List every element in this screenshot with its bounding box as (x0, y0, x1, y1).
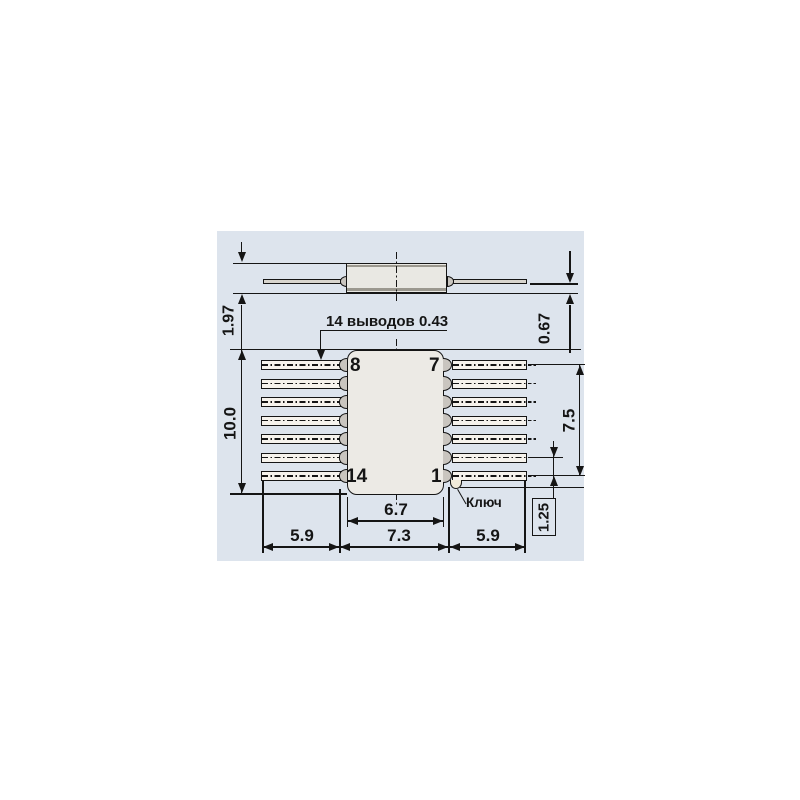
lead (452, 397, 528, 407)
arrowhead (263, 543, 273, 551)
lead (261, 471, 341, 481)
extension-line-body-bottom-left (230, 493, 347, 494)
dim-line-bottom (263, 546, 526, 547)
dim-label-lead-offset: 0.67 (537, 306, 554, 350)
lead (261, 434, 341, 444)
arrowhead (576, 466, 584, 476)
side-lead-right (453, 279, 527, 284)
leader-line (321, 330, 447, 331)
arrowhead (340, 543, 350, 551)
arrowhead (238, 350, 246, 360)
arrowhead (576, 365, 584, 375)
dim-line-0.67 (569, 251, 570, 273)
lead-14 (261, 360, 341, 370)
lead (261, 379, 341, 389)
lead-tab (339, 413, 348, 427)
arrowhead (550, 447, 558, 457)
lead (452, 434, 528, 444)
dim-label-package-height: 1.97 (221, 298, 238, 342)
key-label: Ключ (466, 496, 502, 510)
dim-label-body-width: 6.7 (374, 501, 418, 518)
arrowhead (433, 517, 443, 525)
lead (452, 453, 528, 463)
arrowhead (515, 543, 525, 551)
package-drawing: 1.97 0.67 8 7 14 1 Ключ 14 выв (0, 0, 800, 800)
arrowhead (550, 476, 558, 486)
pin-number-7: 7 (429, 356, 440, 375)
lead (452, 360, 528, 370)
arrowhead (566, 294, 574, 304)
lead (261, 397, 341, 407)
arrowhead (566, 273, 574, 283)
dim-label-pitch: 1.25 (535, 495, 552, 539)
arrowhead (438, 543, 448, 551)
center-line-horizontal (336, 421, 457, 422)
dim-label-body-height: 10.0 (222, 401, 239, 445)
side-lead-left (263, 279, 341, 284)
pin-number-1: 1 (431, 467, 442, 486)
arrowhead (317, 350, 325, 360)
dim-line-1.97 (241, 305, 242, 353)
key-notch (450, 480, 462, 489)
pin-number-8: 8 (350, 356, 361, 375)
arrowhead (450, 543, 460, 551)
dim-label-lead-right: 5.9 (466, 527, 510, 544)
dim-line-6.7 (348, 520, 443, 521)
lead-tab (339, 450, 348, 464)
lead (452, 379, 528, 389)
arrowhead (238, 294, 246, 304)
arrowhead (238, 483, 246, 493)
dim-label-tab-span: 7.3 (377, 527, 421, 544)
extension-line-key-bottom-right (460, 487, 584, 488)
lead (261, 416, 341, 426)
dim-label-lead-left: 5.9 (280, 527, 324, 544)
lead-1 (452, 471, 528, 481)
lead-tab (339, 376, 348, 390)
arrowhead (329, 543, 339, 551)
extension-line (530, 457, 563, 458)
side-lead-tab-left (340, 276, 347, 287)
extension-line-side-top (233, 263, 346, 264)
leads-note-label: 14 выводов 0.43 (326, 314, 448, 329)
arrowhead (348, 517, 358, 525)
lead (261, 453, 341, 463)
dim-label-lead-span: 7.5 (561, 398, 578, 442)
dim-line-0.67 (569, 305, 570, 353)
arrowhead (238, 252, 246, 262)
side-lead-tab-right (447, 276, 454, 287)
leader-line (320, 330, 321, 352)
dim-line-10.0 (241, 350, 242, 494)
pin-number-14: 14 (346, 467, 367, 486)
extension-line-lead-underside (530, 283, 578, 284)
dim-line-7.5 (579, 365, 580, 476)
center-line-side-vertical (396, 252, 397, 302)
lead (452, 416, 528, 426)
